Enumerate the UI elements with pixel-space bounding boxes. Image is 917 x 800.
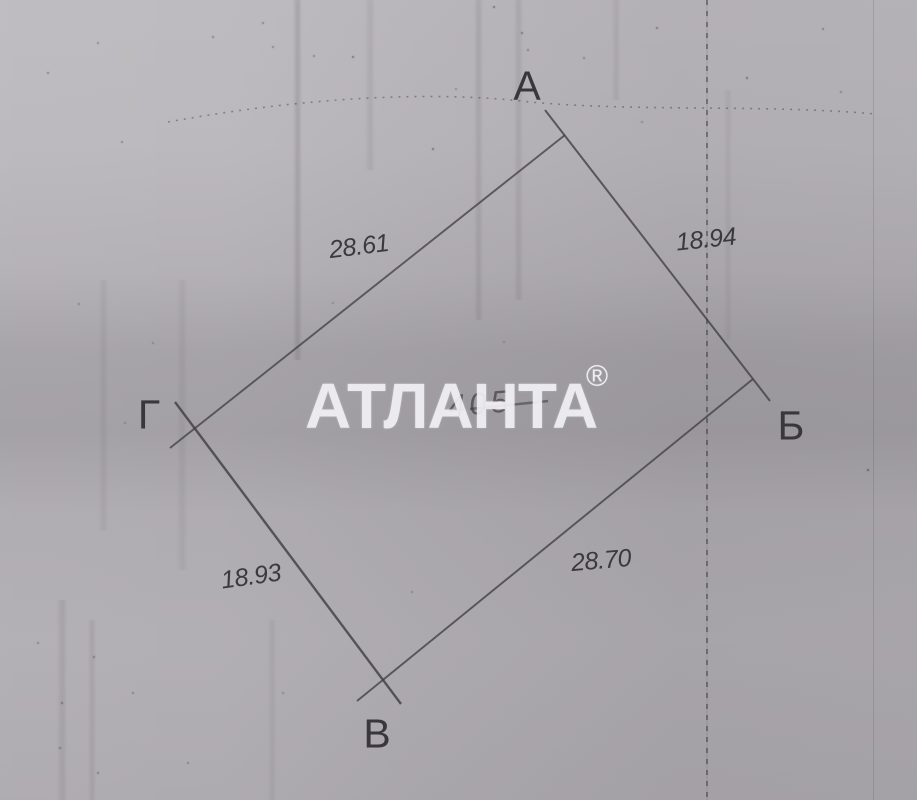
scanned-plot-plan-page: А Б В Г 28.61 18.94 28.70 18.93 405 АТЛА… [0,0,917,800]
vertex-label-g: Г [138,392,160,439]
measurement-side-b-v: 28.70 [570,544,632,578]
registered-trademark-icon: ® [586,360,608,394]
vertex-label-a: А [513,63,540,110]
vertex-label-v: В [363,711,390,758]
watermark-atlanta-text: АТЛАНТА [305,374,597,438]
side-line-a-b [545,110,770,401]
vertex-label-b: Б [778,403,805,450]
side-line-g-v [175,402,401,704]
